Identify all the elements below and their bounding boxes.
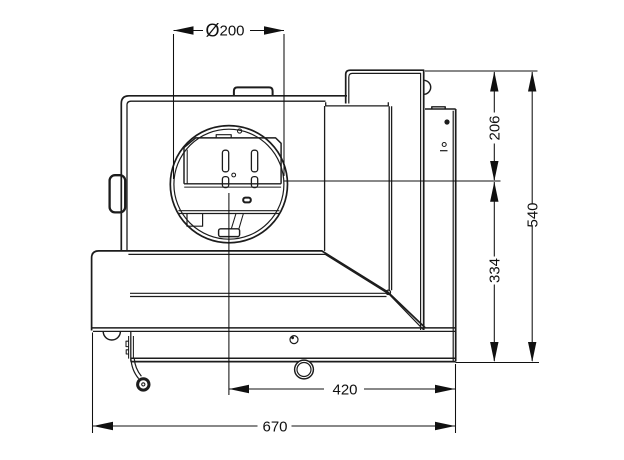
inner-wall-double: [389, 106, 391, 290]
rear-wall-hinge-bump: [424, 80, 431, 94]
base-screw-hole: [290, 336, 298, 344]
dim-label-420: 420: [332, 382, 357, 399]
dim-label-670: 670: [262, 418, 287, 435]
dim-top-to-flue-center: 206: [487, 72, 504, 182]
dim-total-width: 670: [93, 418, 455, 435]
flue-diameter-value: 200: [220, 23, 245, 40]
rear-panel-screw-dot: [444, 119, 449, 124]
arrow-down: [490, 161, 498, 181]
inner-top-channel: [326, 102, 389, 106]
base-screw-dot: [291, 336, 294, 339]
arrow-left: [229, 385, 249, 393]
arrow-right: [435, 385, 455, 393]
drawing-page: Ø 200 206 334 540 420: [0, 0, 624, 460]
dim-label-540: 540: [525, 202, 542, 227]
handle-knob: [138, 379, 149, 390]
front-shelf-inner-line: [128, 254, 423, 329]
front-shelf-outline: [92, 251, 426, 331]
stove-body: [92, 70, 456, 390]
arrow-up: [528, 72, 536, 92]
arrow-right: [264, 26, 284, 34]
arrow-up: [490, 182, 498, 202]
dim-flue-diameter: Ø 200: [174, 21, 285, 41]
arrow-up: [490, 72, 498, 92]
arrow-right: [435, 422, 455, 430]
shelf-underside-bump: [103, 331, 120, 340]
dim-flue-center-to-front: 420: [229, 382, 455, 399]
lever-bracket: [126, 336, 133, 359]
rear-panel-top-edge: [425, 107, 456, 109]
dim-label-334: 334: [487, 258, 504, 283]
hearth-mid-lines: [130, 293, 388, 296]
side-latch: [110, 175, 126, 212]
technical-drawing-canvas: Ø 200 206 334 540 420: [0, 0, 624, 460]
handle-knob-center: [142, 383, 145, 386]
dimensions: Ø 200 206 334 540 420: [93, 21, 542, 436]
extension-lines: [93, 34, 540, 433]
dim-total-height: 540: [525, 72, 542, 363]
arrow-left: [93, 422, 113, 430]
flue-diameter-symbol: Ø: [206, 21, 220, 41]
arrow-left: [174, 26, 194, 34]
arrow-down: [490, 342, 498, 362]
arrow-down: [528, 342, 536, 362]
rear-panel-hole: [442, 143, 446, 147]
dim-flue-center-to-base: 334: [487, 182, 504, 362]
dim-label-206: 206: [487, 115, 504, 140]
